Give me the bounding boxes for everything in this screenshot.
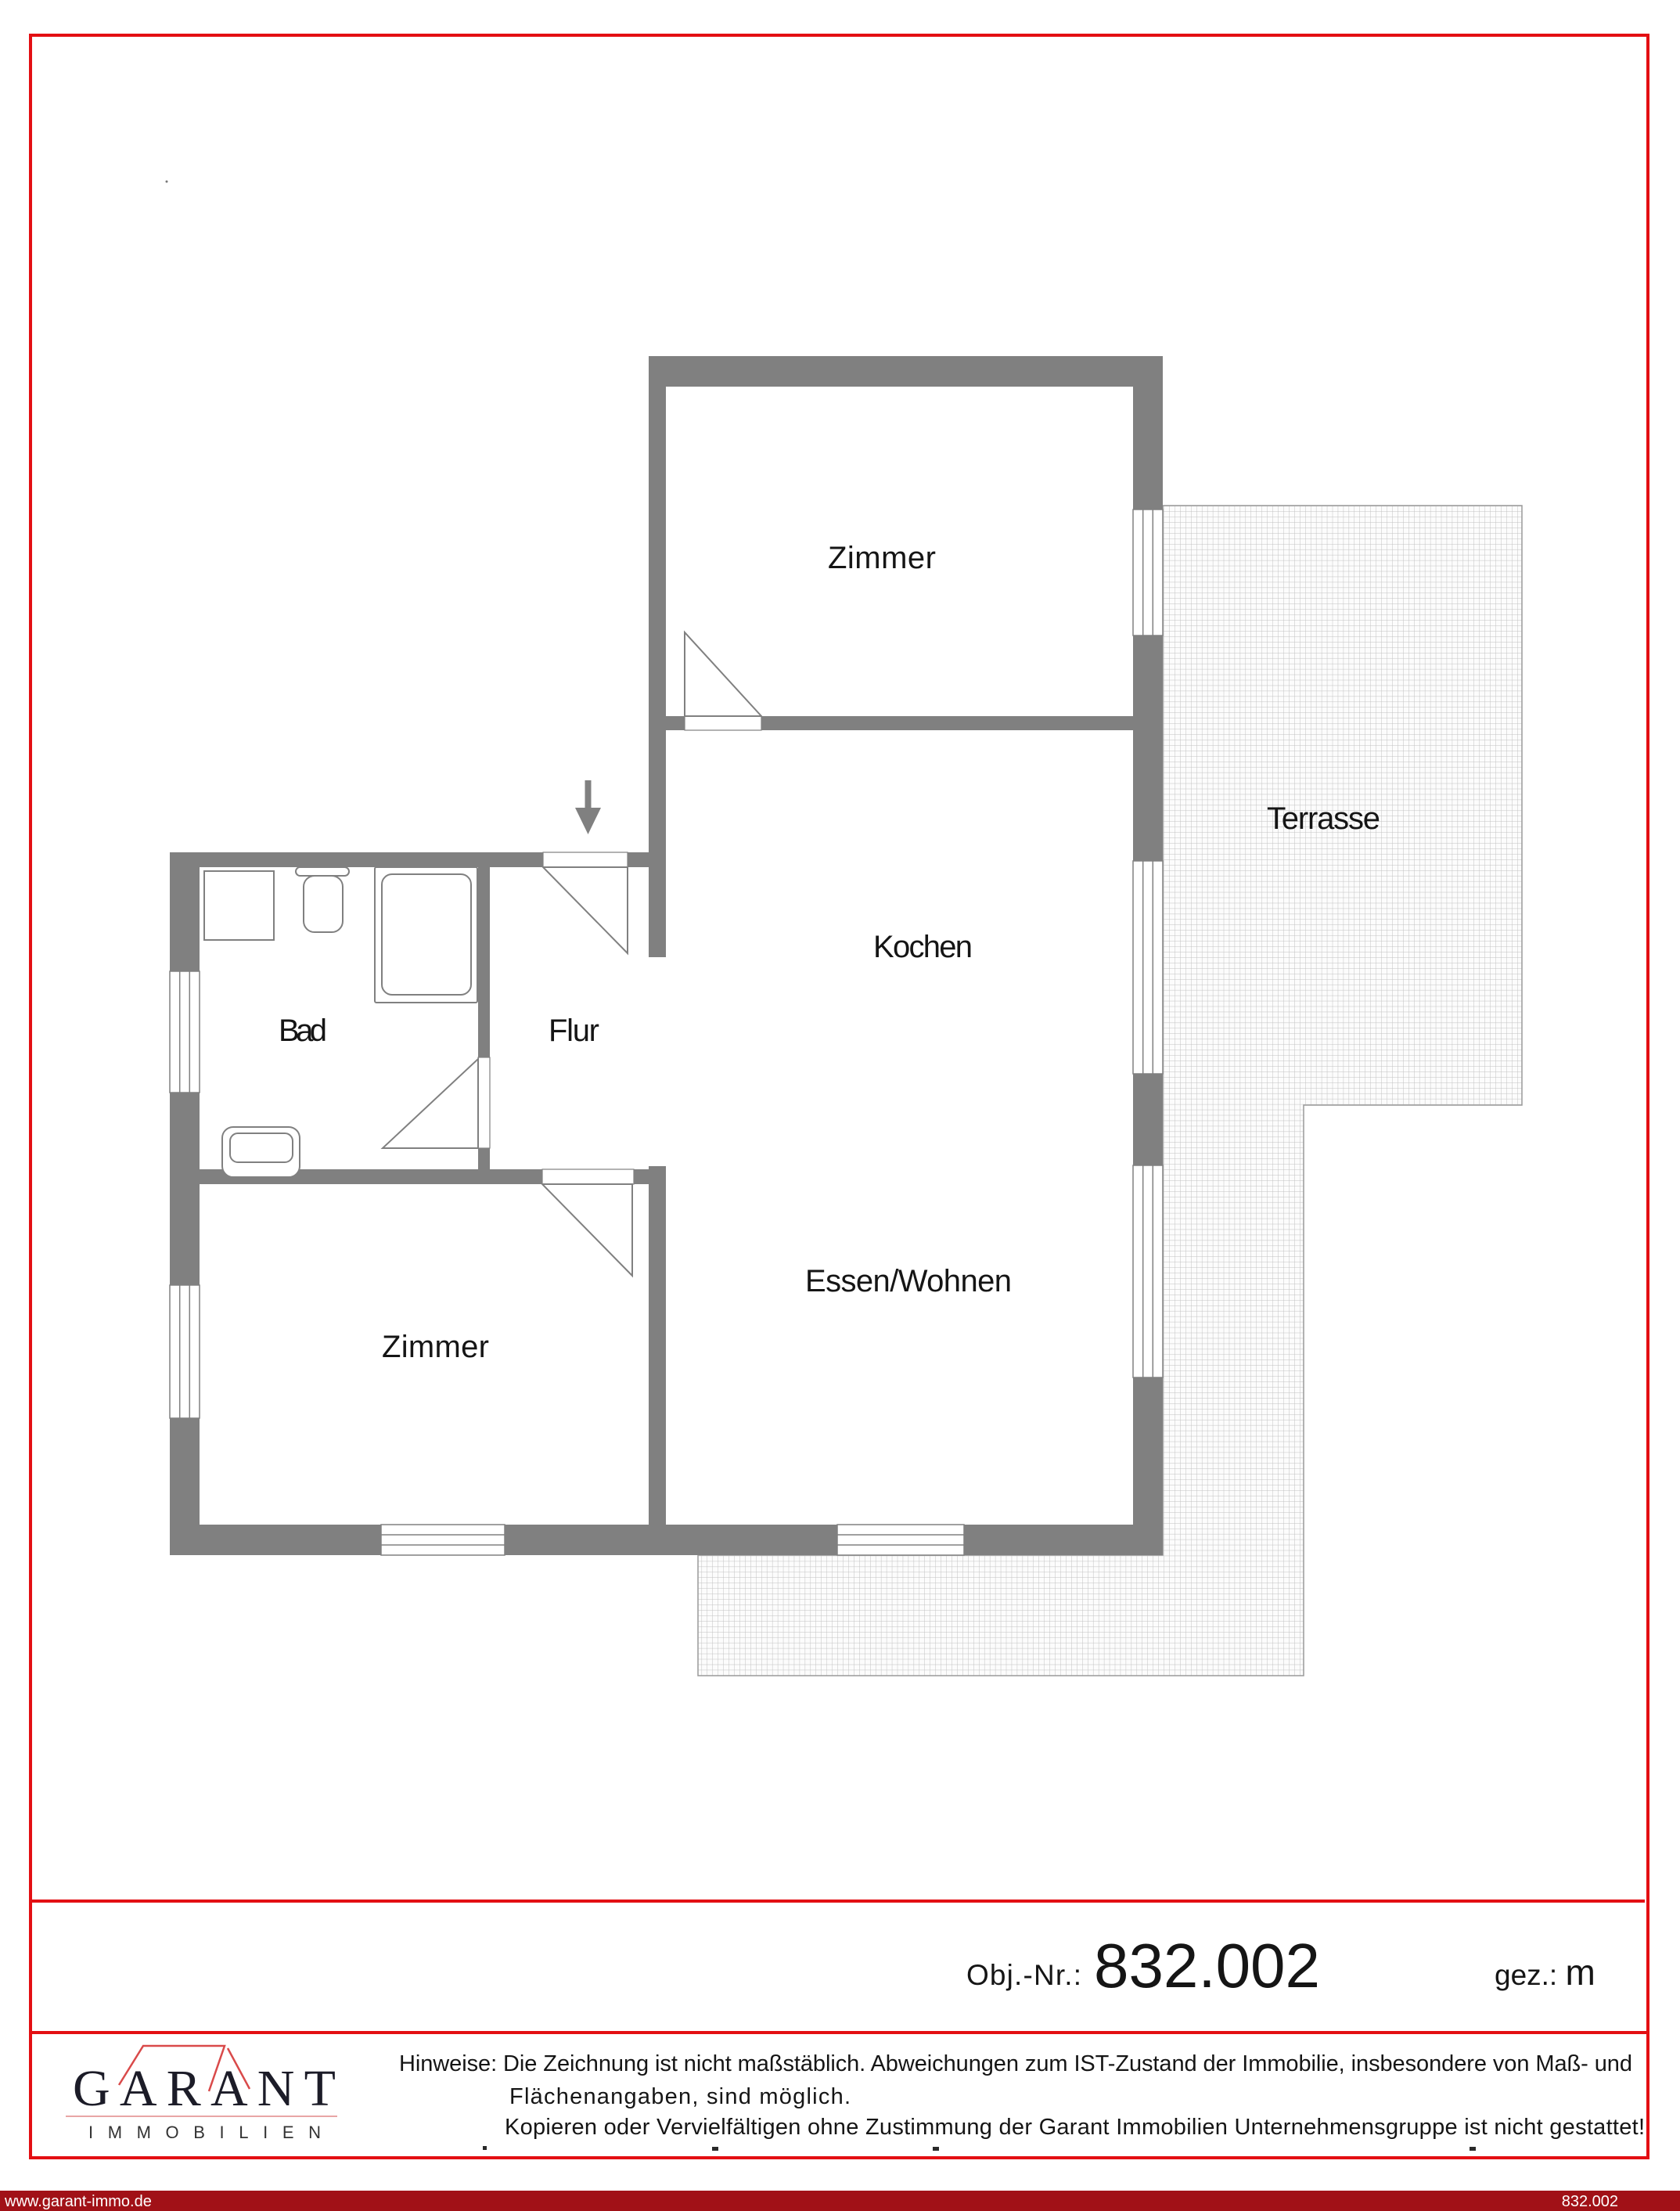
svg-text:GARANT: GARANT <box>73 2060 336 2117</box>
svg-text:Terrasse: Terrasse <box>1267 801 1380 836</box>
svg-text:Zimmer: Zimmer <box>382 1330 489 1364</box>
svg-text:Zimmer: Zimmer <box>828 541 936 575</box>
svg-text:Essen/Wohnen: Essen/Wohnen <box>805 1264 1012 1298</box>
svg-text:www.garant-immo.de: www.garant-immo.de <box>4 2193 152 2210</box>
svg-text:IMMOBILIEN: IMMOBILIEN <box>88 2123 321 2142</box>
svg-text:Flächenangaben, sind möglich.: Flächenangaben, sind möglich. <box>509 2084 851 2109</box>
svg-text:Bad: Bad <box>279 1014 327 1048</box>
svg-text:gez.: m: gez.: m <box>1495 1952 1595 1993</box>
svg-text:Kopieren oder Vervielfältigen: Kopieren oder Vervielfältigen ohne Zusti… <box>505 2115 1645 2140</box>
svg-text:Obj.-Nr.:: Obj.-Nr.: <box>966 1959 1081 1991</box>
svg-text:832.002: 832.002 <box>1094 1931 1320 2000</box>
svg-text:Kochen: Kochen <box>873 930 973 964</box>
svg-text:Flur: Flur <box>549 1014 599 1048</box>
svg-text:832.002: 832.002 <box>1562 2193 1618 2210</box>
svg-text:Hinweise: Die Zeichnung ist ni: Hinweise: Die Zeichnung ist nicht maßstä… <box>399 2051 1632 2076</box>
